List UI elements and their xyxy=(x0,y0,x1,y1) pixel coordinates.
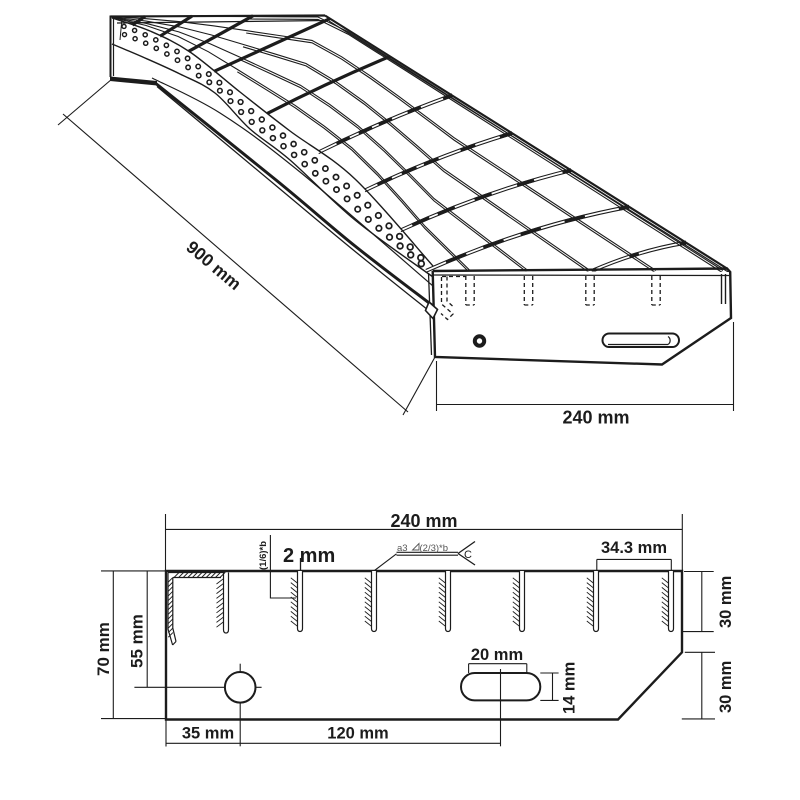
svg-text:a3: a3 xyxy=(397,543,408,554)
svg-text:34.3 mm: 34.3 mm xyxy=(601,539,667,557)
svg-text:240 mm: 240 mm xyxy=(390,511,457,531)
svg-text:35 mm: 35 mm xyxy=(182,725,234,743)
svg-text:900 mm: 900 mm xyxy=(182,237,245,294)
svg-text:30 mm: 30 mm xyxy=(717,661,735,713)
svg-text:30 mm: 30 mm xyxy=(717,576,735,628)
svg-text:2 mm: 2 mm xyxy=(283,545,335,567)
svg-text:70 mm: 70 mm xyxy=(94,622,113,676)
svg-text:55 mm: 55 mm xyxy=(128,614,147,668)
svg-text:C: C xyxy=(464,549,472,561)
svg-text:120 mm: 120 mm xyxy=(327,725,388,743)
svg-text:20 mm: 20 mm xyxy=(471,646,523,664)
svg-text:(2/3)*b: (2/3)*b xyxy=(420,543,449,554)
svg-text:14 mm: 14 mm xyxy=(561,662,579,714)
svg-text:240 mm: 240 mm xyxy=(562,408,629,428)
svg-text:(1/6)*b: (1/6)*b xyxy=(258,541,269,570)
